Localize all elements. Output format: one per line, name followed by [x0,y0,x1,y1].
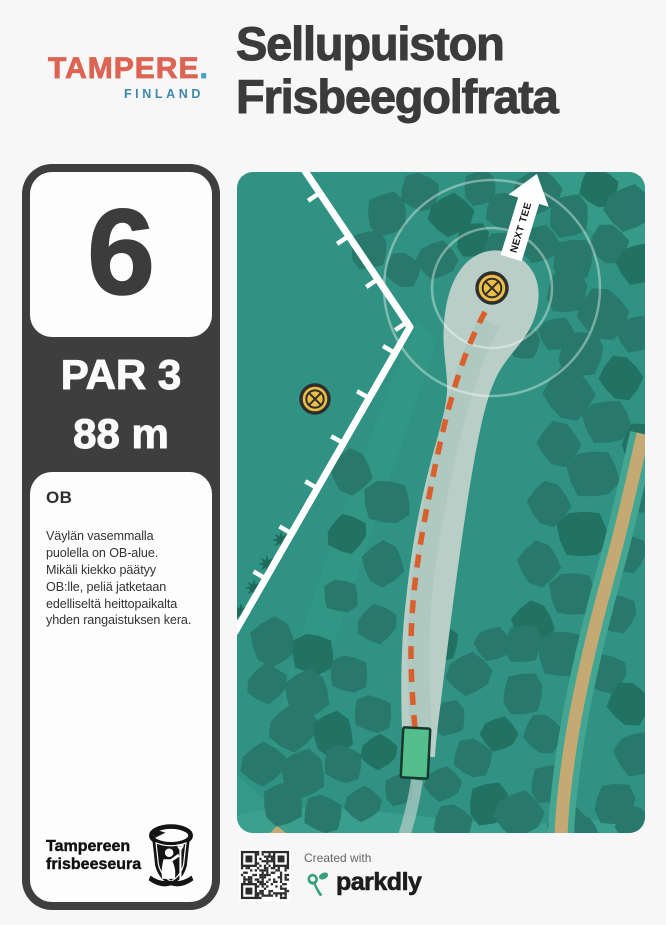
tampere-wordmark: TAMPERE. [48,52,204,86]
rules-card: OB Väylän vasemmalla puolella on OB-alue… [30,472,212,902]
ob-rule-text: Väylän vasemmalla puolella on OB-alue. M… [46,528,198,629]
hole-number-card: 6 [30,172,212,337]
tree [364,481,409,523]
page-title: Sellupuiston Frisbeegolfrata [236,18,660,123]
hole-info-panel: 6 PAR 3 88 m OB Väylän vasemmalla puolel… [22,164,220,910]
course-map: NEXT TEE [237,172,645,833]
ob-heading: OB [46,488,212,508]
tree [505,626,541,663]
tampere-wordmark-dot: . [199,52,208,85]
disc-golf-hole-flyer: TAMPERE. FINLAND Sellupuiston Frisbeegol… [0,0,666,925]
credit-block: Created with parkdly [304,849,421,897]
tree [331,655,368,692]
parkdly-brand: parkdly [304,868,421,897]
tampere-wordmark-text: TAMPERE [48,52,199,85]
parkdly-logo-icon [304,869,330,897]
basket-icon [477,273,507,303]
club-name: Tampereen frisbeeseura [46,838,141,875]
tree [557,512,610,557]
tee-pad [401,727,431,778]
qr-code [239,849,291,901]
other-hole-basket-icon [301,385,329,413]
course-map-canvas: NEXT TEE [237,172,645,833]
parkdly-wordmark: parkdly [336,868,421,897]
tree [293,634,333,674]
club-crest-icon [143,822,199,890]
footer: Created with parkdly [239,849,421,901]
hole-number: 6 [30,172,212,332]
par-distance-block: PAR 3 88 m [22,345,220,463]
tree [503,674,542,715]
finland-subtitle: FINLAND [48,87,204,101]
distance-label: 88 m [22,404,220,463]
tampere-finland-logo: TAMPERE. FINLAND [48,52,204,101]
created-with-label: Created with [304,851,421,865]
par-label: PAR 3 [22,345,220,404]
tree [325,580,358,612]
club-branding: Tampereen frisbeeseura [46,822,206,890]
